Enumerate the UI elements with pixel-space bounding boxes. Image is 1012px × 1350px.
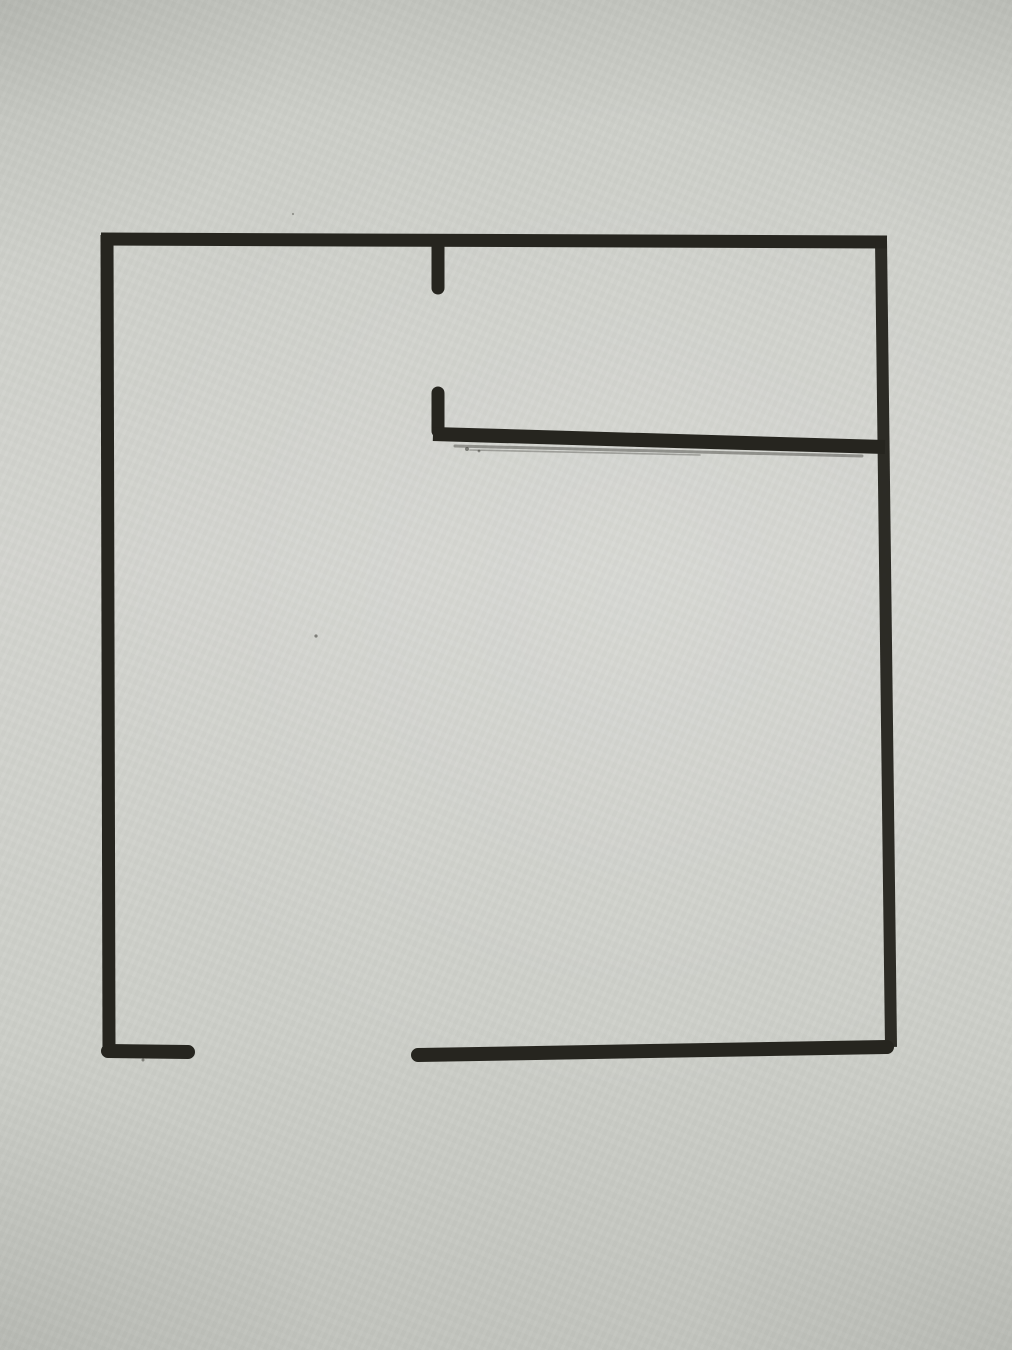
bottom-left-wall-segment [108, 1051, 188, 1052]
marker-sketch [0, 0, 1012, 1350]
outline-left-wall [107, 235, 109, 1050]
ink-dot [478, 450, 481, 453]
ink-dot [465, 447, 469, 451]
outline-right-wall [881, 240, 891, 1047]
paper-photo [0, 0, 1012, 1350]
bottom-right-wall-segment [418, 1047, 887, 1055]
paper-speck [292, 213, 294, 215]
ink-dot [142, 1059, 145, 1062]
outline-top-wall [101, 239, 887, 242]
partition-wall-line [433, 434, 885, 447]
paper-speck [314, 634, 317, 637]
